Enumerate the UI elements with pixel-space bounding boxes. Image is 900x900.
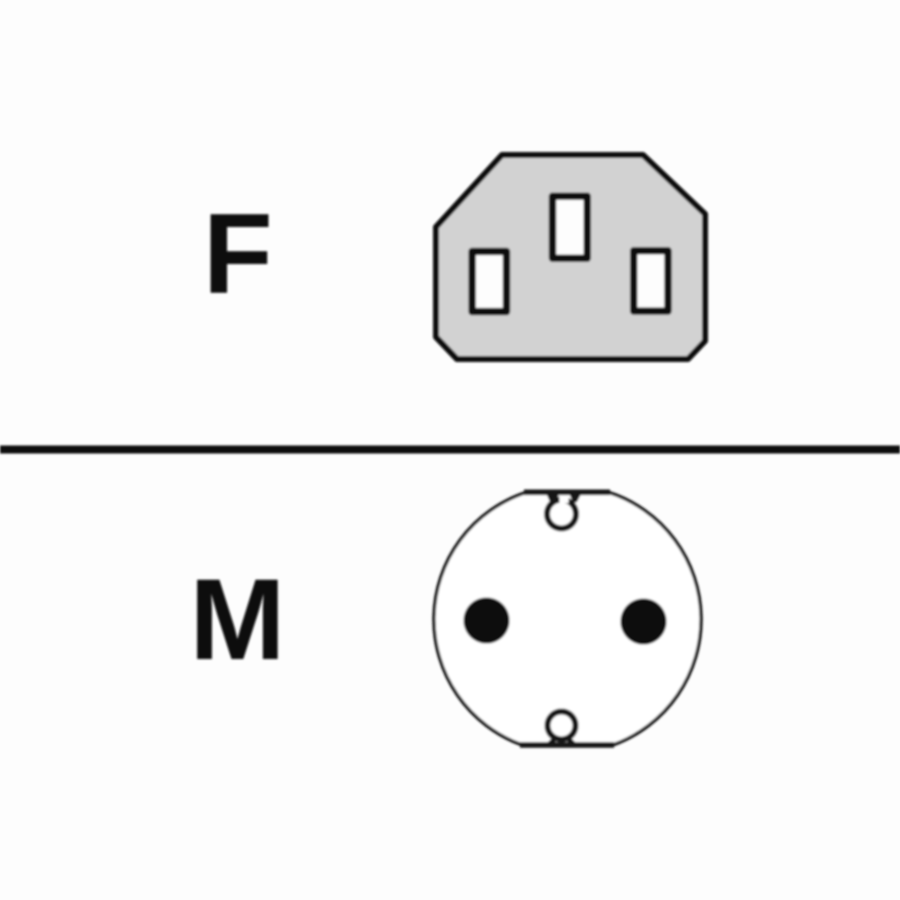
svg-text:M: M <box>190 556 286 684</box>
svg-text:F: F <box>203 191 273 318</box>
